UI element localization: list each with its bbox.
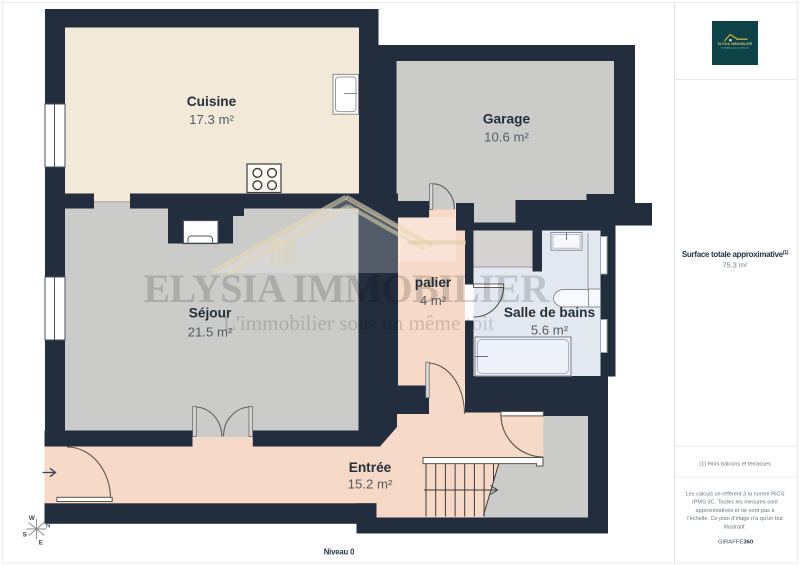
svg-text:approximatives et ne sont pas: approximatives et ne sont pas à <box>696 508 776 514</box>
svg-text:Salle de bains: Salle de bains <box>504 305 596 320</box>
svg-text:palier: palier <box>415 275 452 290</box>
svg-text:10.6 m²: 10.6 m² <box>484 130 529 145</box>
svg-text:4 m²: 4 m² <box>420 293 447 308</box>
svg-text:75.3 m²: 75.3 m² <box>723 261 748 270</box>
svg-text:21.5 m²: 21.5 m² <box>188 325 233 340</box>
svg-text:Surface totale approximative(1: Surface totale approximative(1) <box>682 250 789 259</box>
svg-text:(1) Hors balcons et terrasses: (1) Hors balcons et terrasses <box>699 462 771 468</box>
svg-text:Cuisine: Cuisine <box>187 94 237 109</box>
svg-text:Niveau 0: Niveau 0 <box>324 548 355 557</box>
svg-text:GIRAFFE360: GIRAFFE360 <box>718 540 754 546</box>
svg-text:S: S <box>23 532 27 539</box>
svg-text:15.2 m²: 15.2 m² <box>348 477 393 492</box>
svg-text:Les calculs se réfèrent à la n: Les calculs se réfèrent à la norme RICS <box>686 492 785 498</box>
svg-text:E: E <box>39 540 43 547</box>
svg-text:l'échelle. Ce plan d'étage n'a: l'échelle. Ce plan d'étage n'a qu'un but <box>687 516 783 522</box>
svg-text:Entrée: Entrée <box>349 460 392 475</box>
svg-text:W: W <box>29 515 35 522</box>
svg-text:L'immobilier sous un même toit: L'immobilier sous un même toit <box>223 311 494 335</box>
svg-text:ELYSIA IMMOBILIER: ELYSIA IMMOBILIER <box>718 42 753 46</box>
svg-text:17.3 m²: 17.3 m² <box>189 112 234 127</box>
svg-text:IPMS 3C. Toutes les mesures so: IPMS 3C. Toutes les mesures sont <box>692 500 778 506</box>
svg-text:L'immobilier sous un même toit: L'immobilier sous un même toit <box>721 47 749 50</box>
svg-text:5.6 m²: 5.6 m² <box>531 323 569 338</box>
svg-text:N: N <box>46 523 51 530</box>
svg-text:ELYSIA IMMOBILIER: ELYSIA IMMOBILIER <box>143 266 550 311</box>
svg-text:illustratif.: illustratif. <box>724 524 747 530</box>
svg-text:Garage: Garage <box>483 112 531 127</box>
svg-text:Séjour: Séjour <box>189 306 232 321</box>
